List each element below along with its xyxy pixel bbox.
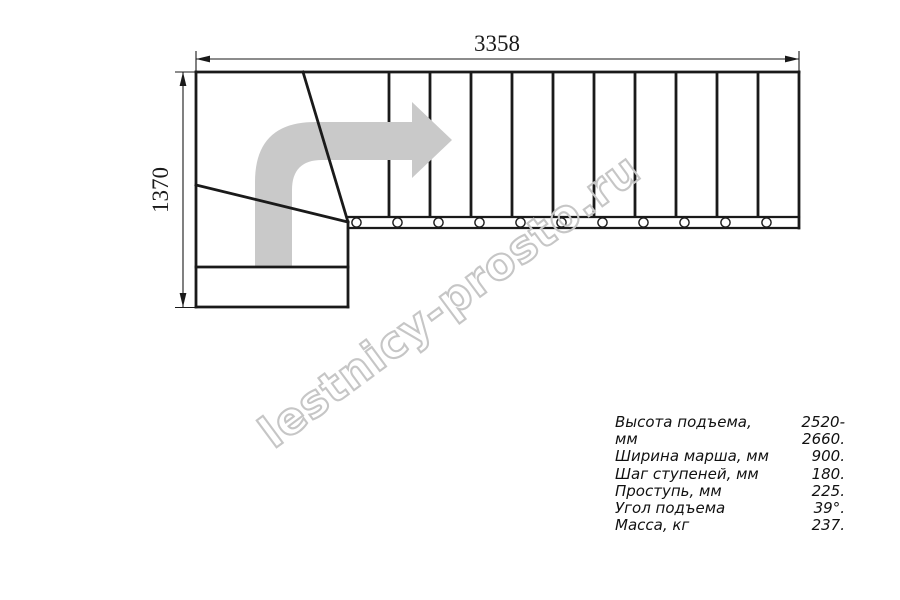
spec-label: Высота подъема, мм: [615, 414, 766, 448]
spec-value: 2520-2660.: [766, 414, 845, 448]
stringer-bolt-circle: [680, 218, 689, 227]
spec-value: 180.: [812, 466, 845, 483]
spec-value: 39°.: [814, 500, 845, 517]
stringer-bolt-circle: [393, 218, 402, 227]
stringer-bolt-circle: [557, 218, 566, 227]
spec-row-tread-depth: Проступь, мм 225.: [615, 483, 845, 500]
spec-label: Масса, кг: [615, 517, 689, 534]
stringer-bolt-circle: [475, 218, 484, 227]
left-dimension-label: 1370: [148, 167, 173, 213]
spec-value: 900.: [812, 448, 845, 465]
stringer-bolt-circle: [598, 218, 607, 227]
spec-value: 237.: [812, 517, 845, 534]
stringer-bolt-circle: [721, 218, 730, 227]
staircase-plan-canvas: 3358 1370 lestnicy-prosto.ru Высота подъ…: [0, 0, 900, 600]
spec-label: Ширина марша, мм: [615, 448, 769, 465]
direction-arrow: [255, 102, 452, 266]
left-dim-arrow-top: [180, 72, 187, 86]
spec-label: Угол подъема: [615, 500, 725, 517]
top-dimension-label: 3358: [474, 31, 520, 56]
spec-label: Шаг ступеней, мм: [615, 466, 759, 483]
spec-row-step-rise: Шаг ступеней, мм 180.: [615, 466, 845, 483]
spec-row-mass: Масса, кг 237.: [615, 517, 845, 534]
top-dimension: 3358: [196, 31, 799, 71]
spec-row-angle: Угол подъема 39°.: [615, 500, 845, 517]
spec-row-flight-width: Ширина марша, мм 900.: [615, 448, 845, 465]
spec-row-height: Высота подъема, мм 2520-2660.: [615, 414, 845, 448]
spec-value: 225.: [812, 483, 845, 500]
top-dim-arrow-left: [196, 56, 210, 63]
stringer-bolt-circle: [639, 218, 648, 227]
spec-table: Высота подъема, мм 2520-2660. Ширина мар…: [615, 414, 845, 534]
spec-label: Проступь, мм: [615, 483, 722, 500]
stringer-bolt-circle: [352, 218, 361, 227]
stringer-bolt-circle: [434, 218, 443, 227]
left-dim-arrow-bottom: [180, 293, 187, 307]
stringer-bolt-circle: [762, 218, 771, 227]
left-dimension: 1370: [148, 72, 196, 308]
stringer-bolt-circle: [516, 218, 525, 227]
stringer-bolt-circles: [352, 218, 771, 227]
top-dim-arrow-right: [785, 56, 799, 63]
